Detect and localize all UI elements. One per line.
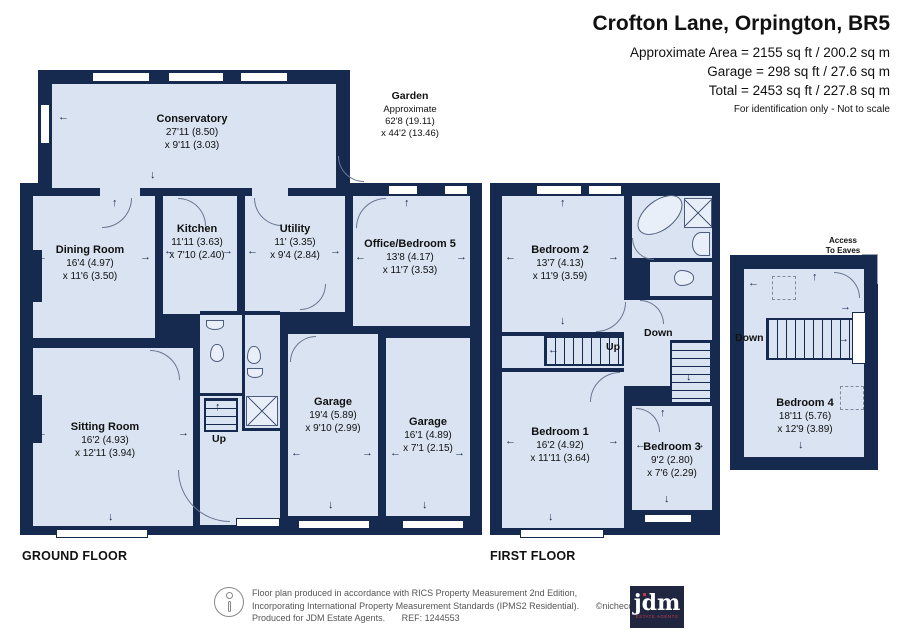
measure-arrow-icon <box>150 170 156 181</box>
page-title: Crofton Lane, Orpington, BR5 <box>593 12 890 36</box>
shower-icon <box>246 396 278 426</box>
measure-arrow-icon <box>58 112 69 123</box>
measure-arrow-icon <box>664 494 670 505</box>
measure-arrow-icon <box>328 500 334 511</box>
area-line: Approximate Area = 2155 sq ft / 200.2 sq… <box>593 43 890 62</box>
jdm-logo-subtext: ESTATE AGENTS <box>630 614 684 619</box>
window <box>168 72 224 82</box>
garage-line: Garage = 298 sq ft / 27.6 sq m <box>593 62 890 81</box>
footer-line3: Produced for JDM Estate Agents. REF: 124… <box>252 612 666 625</box>
partition-wall <box>200 311 280 315</box>
ref-number: REF: 1244553 <box>402 613 460 623</box>
stairs-arrow-icon <box>838 334 849 345</box>
measure-arrow-icon <box>548 512 554 523</box>
measure-arrow-icon <box>112 198 118 209</box>
window <box>644 514 692 523</box>
window <box>240 72 288 82</box>
bedroom3-label: Bedroom 3 9'2 (2.80) x 7'6 (2.29) <box>627 440 717 480</box>
garage-door <box>402 520 464 529</box>
measure-arrow-icon <box>362 448 373 459</box>
jdm-logo: jdm ESTATE AGENTS <box>630 586 684 628</box>
measure-arrow-icon <box>422 500 428 511</box>
partition-wall <box>200 393 242 396</box>
window <box>444 185 468 195</box>
measure-arrow-icon <box>798 440 804 451</box>
kitchen-label: Kitchen 11'11 (3.63) x 7'10 (2.40) <box>157 222 237 262</box>
footer-line1: Floor plan produced in accordance with R… <box>252 587 666 600</box>
partition-wall <box>242 428 280 431</box>
first-floor-title: FIRST FLOOR <box>490 549 576 563</box>
window <box>852 312 866 364</box>
eaves-storage-dashed <box>772 276 796 300</box>
measure-arrow-icon <box>178 428 189 439</box>
partition-wall <box>242 314 245 428</box>
down-label-first: Down <box>644 327 673 339</box>
stairs-arrow-icon <box>548 345 559 356</box>
bedroom4-label: Bedroom 4 18'11 (5.76) x 12'9 (3.89) <box>745 396 865 436</box>
window <box>388 185 418 195</box>
disclaimer: For identification only - Not to scale <box>593 104 890 115</box>
measure-arrow-icon <box>840 302 851 313</box>
footer-line2: Incorporating International Property Mea… <box>252 600 666 613</box>
utility-label: Utility 11' (3.35) x 9'4 (2.84) <box>255 222 335 262</box>
window <box>40 104 50 144</box>
access-eaves-label: Access To Eaves <box>812 236 874 255</box>
sink-icon <box>206 320 224 330</box>
down-label-second: Down <box>735 332 764 344</box>
ground-floor-title: GROUND FLOOR <box>22 549 127 563</box>
footer-text: Floor plan produced in accordance with R… <box>252 587 666 625</box>
rics-person-body <box>228 601 231 612</box>
measure-arrow-icon <box>812 272 818 283</box>
floorplan-page: Crofton Lane, Orpington, BR5 Approximate… <box>0 0 900 636</box>
window <box>236 518 280 527</box>
measure-arrow-icon <box>660 408 666 419</box>
window <box>56 529 148 538</box>
shower-icon <box>684 198 712 228</box>
measure-arrow-icon <box>404 198 410 209</box>
rics-person-head <box>226 592 233 599</box>
up-label-first: Up <box>606 341 620 353</box>
up-label-ground: Up <box>212 433 226 445</box>
rear-wall-opening <box>100 183 140 196</box>
dining-room-label: Dining Room 16'4 (4.97) x 11'6 (3.50) <box>30 243 150 283</box>
measure-arrow-icon <box>748 278 759 289</box>
office-bedroom5-label: Office/Bedroom 5 13'8 (4.17) x 11'7 (3.5… <box>345 237 475 277</box>
window <box>520 529 604 538</box>
window <box>536 185 582 195</box>
garage1-label: Garage 19'4 (5.89) x 9'10 (2.99) <box>283 395 383 435</box>
jdm-logo-dot <box>643 593 646 596</box>
garden-label: Garden Approximate 62'8 (19.11) x 44'2 (… <box>360 90 460 141</box>
garage-door <box>298 520 370 529</box>
measure-arrow-icon <box>560 316 566 327</box>
stairs-arrow-icon <box>686 372 692 383</box>
bedroom2-label: Bedroom 2 13'7 (4.13) x 11'9 (3.59) <box>500 243 620 283</box>
window <box>92 72 150 82</box>
sitting-room-label: Sitting Room 16'2 (4.93) x 12'11 (3.94) <box>45 420 165 460</box>
rear-wall-opening <box>252 183 288 196</box>
measure-arrow-icon <box>108 512 114 523</box>
stairs-up-arrow-icon <box>215 402 221 413</box>
window <box>588 185 622 195</box>
measure-arrow-icon <box>560 198 566 209</box>
sink-icon <box>247 368 263 378</box>
garage2-label: Garage 16'1 (4.89) x 7'1 (2.15) <box>383 415 473 455</box>
bedroom1-label: Bedroom 1 16'2 (4.92) x 11'11 (3.64) <box>500 425 620 465</box>
header: Crofton Lane, Orpington, BR5 Approximate… <box>593 12 890 115</box>
toilet-icon <box>247 346 261 364</box>
conservatory-label: Conservatory 27'11 (8.50) x 9'11 (3.03) <box>117 112 267 152</box>
total-line: Total = 2453 sq ft / 227.8 sq m <box>593 81 890 100</box>
sink-icon <box>692 232 710 256</box>
toilet-icon <box>210 344 224 362</box>
stairs-ground <box>204 398 238 432</box>
measure-arrow-icon <box>291 448 302 459</box>
access-eaves-pointer-line <box>862 254 878 284</box>
